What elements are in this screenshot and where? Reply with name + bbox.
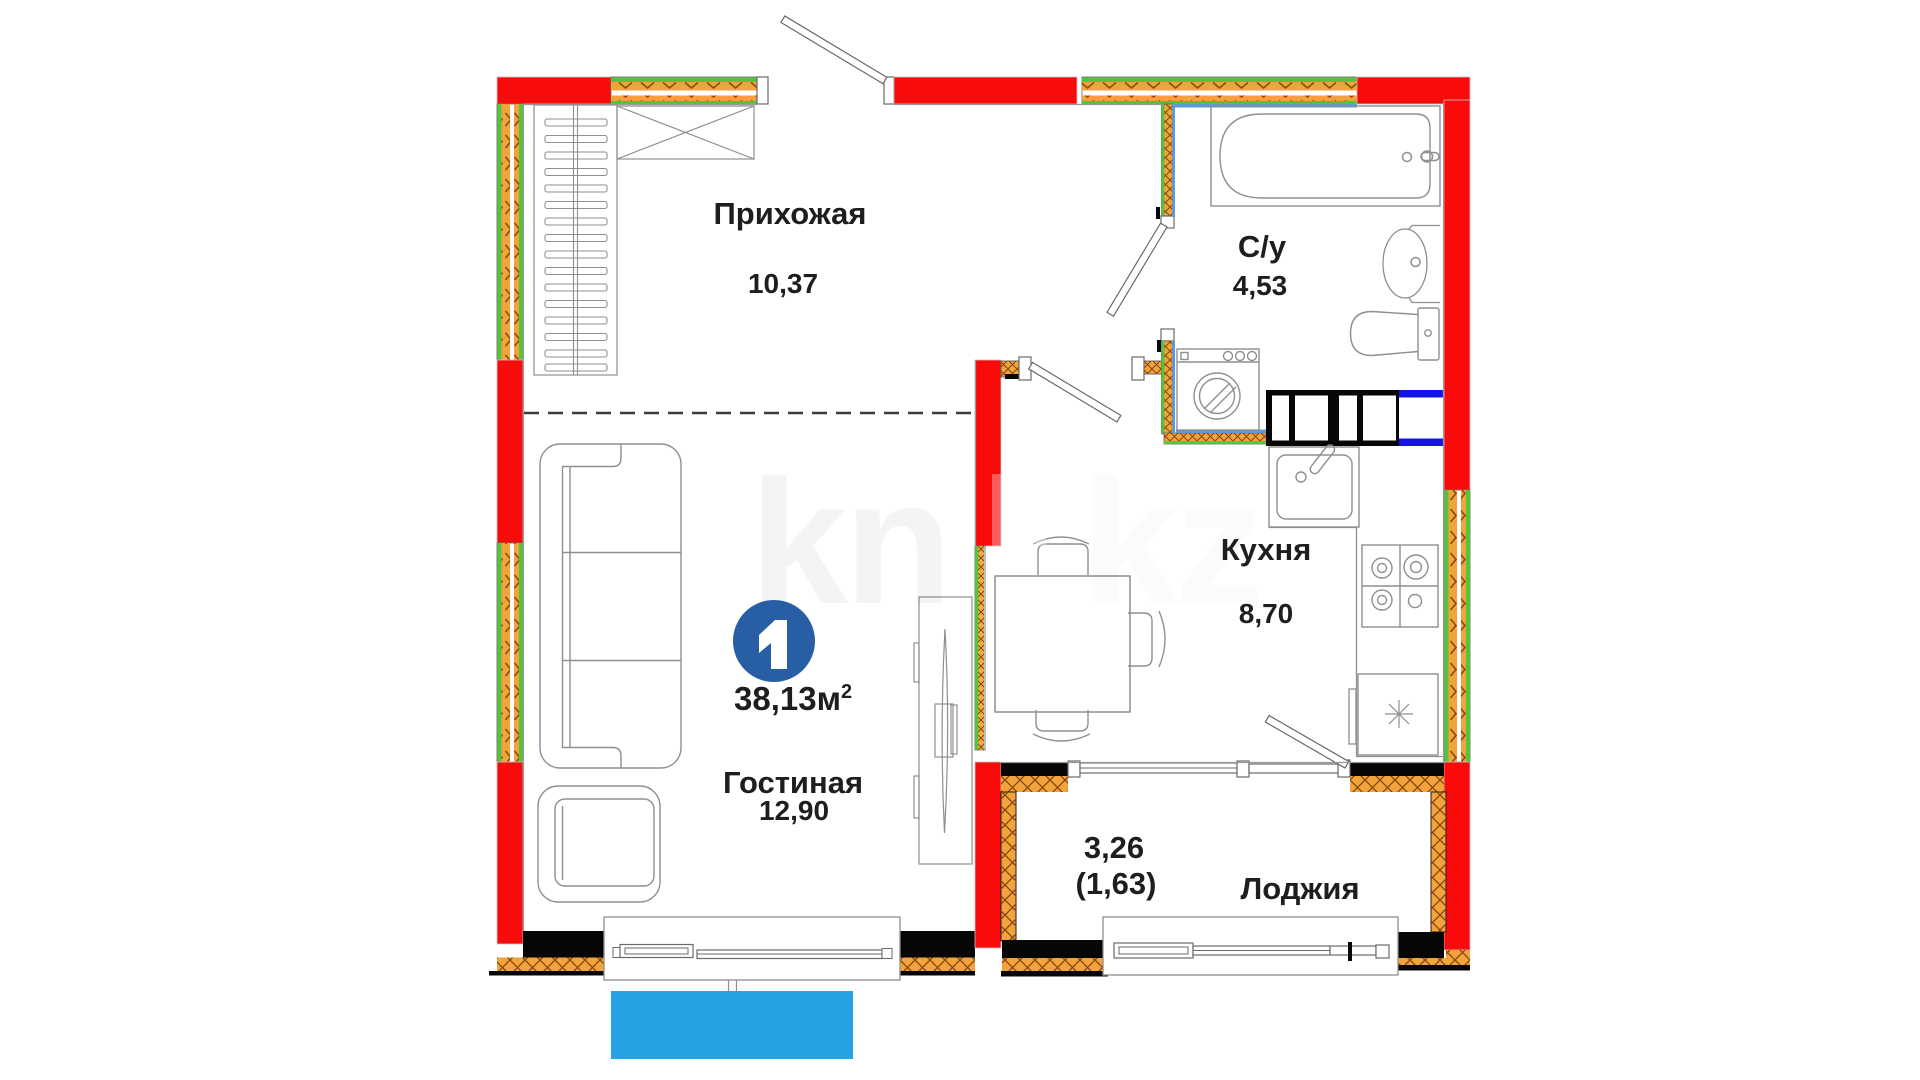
- svg-text:(1,63): (1,63): [1076, 866, 1157, 901]
- svg-text:Кухня: Кухня: [1221, 532, 1312, 567]
- svg-text:8,70: 8,70: [1239, 598, 1294, 629]
- svg-text:12,90: 12,90: [759, 795, 829, 826]
- svg-text:3,26: 3,26: [1084, 830, 1144, 865]
- svg-text:38,13м2: 38,13м2: [734, 680, 852, 717]
- svg-text:10,37: 10,37: [748, 268, 818, 299]
- svg-text:С/у: С/у: [1238, 229, 1287, 264]
- svg-text:Прихожая: Прихожая: [714, 196, 867, 231]
- svg-text:Лоджия: Лоджия: [1240, 871, 1359, 906]
- svg-text:4,53: 4,53: [1233, 270, 1288, 301]
